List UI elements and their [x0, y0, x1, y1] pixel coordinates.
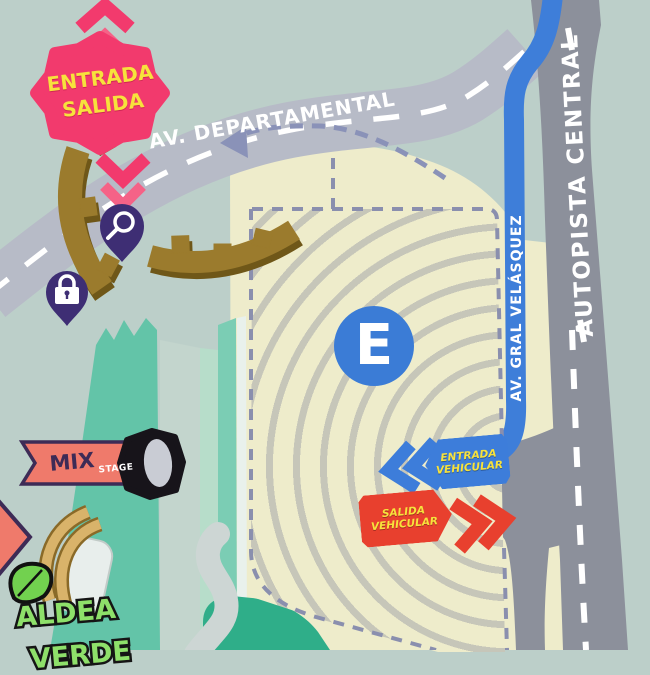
road-label-departamental: AV. DEPARTAMENTAL — [147, 86, 397, 153]
green-village-line1: ALDEA — [15, 594, 117, 634]
stage-type-label: STAGE — [98, 462, 134, 475]
venue-green-strip — [218, 318, 237, 650]
banner-corner — [0, 498, 30, 578]
parking-marker: E — [334, 306, 414, 386]
stage-structure — [22, 431, 183, 497]
venue-walkway-band — [160, 340, 200, 650]
leaf-icon — [10, 564, 51, 602]
green-village-line2: VERDE — [29, 636, 132, 675]
road-center-dashes — [572, 330, 586, 650]
walkway-path — [196, 534, 227, 650]
venue-mint-band — [200, 348, 218, 650]
road-label-velasquez: AV. GRAL VELÁSQUEZ — [509, 214, 525, 401]
stage-name: MIX — [49, 448, 96, 476]
parking-hatch-area — [233, 200, 525, 652]
search-pin[interactable] — [100, 204, 144, 262]
parking-symbol: E — [355, 318, 393, 374]
venue-white-strip — [237, 316, 247, 650]
festival-map: { "map": { "entrance_burst": { "line1": … — [0, 0, 650, 650]
chevron-up-icon — [80, 6, 130, 56]
chevron-down-icon — [100, 158, 146, 205]
road-label-autopista: AUTOPISTA CENTRAL — [557, 32, 599, 337]
lock-pin[interactable] — [46, 271, 88, 326]
vehicle-exit-line2: VEHICULAR — [371, 515, 439, 533]
